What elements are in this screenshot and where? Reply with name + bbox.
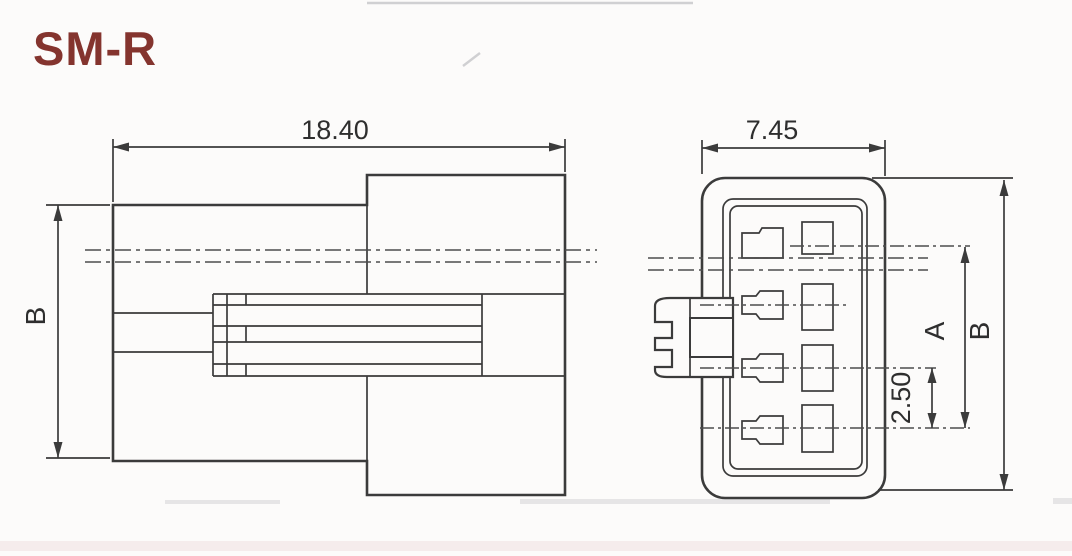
arrowhead-bottom [961,412,970,428]
pin-cavity-keyed-row1 [742,228,783,258]
dimension-value-front-height: B [964,322,995,341]
dimension-value-pin-pitch: 2.50 [886,372,916,425]
page-title: SM-R [33,22,157,75]
arrowhead-top [961,247,970,263]
extension-lines [46,205,110,458]
pin-cavities-rect-column [802,222,833,452]
extension-lines [702,140,885,176]
connector-drawing-svg: SM-R 18.40 [0,0,1072,551]
scan-artifact-smudge [1053,498,1072,504]
dimension-value-side-width: 18.40 [301,115,369,145]
pin-cavity-keyed-row4 [742,416,783,444]
wire-entry-lines [113,313,213,352]
side-latch-bracket [655,298,733,377]
dimension-value-side-height: B [20,307,51,326]
arrowhead-top [928,368,937,383]
rail-inner-lines [213,305,482,364]
arrowhead-left [113,143,129,152]
arrowhead-top [54,205,63,221]
dimension-side-height: B [20,205,110,458]
arrowhead-bottom [54,442,63,458]
arrowhead-right [549,143,565,152]
scan-artifact-smudge [165,500,280,504]
pin-cavity-rect-row1 [802,222,833,254]
dimension-front-width: 7.45 [702,115,885,176]
front-view-inner-wall [723,199,867,476]
scan-artifact-bottom-band [0,541,1072,551]
side-view-housing-outline [113,175,565,495]
pin-cavity-rect-row2 [802,284,833,330]
scan-artifact-smudge [520,499,830,504]
side-view-terminal-rails [113,294,565,376]
dimension-side-width: 18.40 [113,115,565,202]
latch-slot [690,318,733,357]
scan-artifact-stray-mark [463,53,480,66]
extension-lines [113,139,565,202]
drawing-sheet: SM-R 18.40 [0,0,1072,551]
dimension-value-front-width: 7.45 [746,115,799,145]
front-view: 7.45 2.50 A B [648,115,1013,498]
pin-cavities-keyed-column [742,228,783,444]
arrowhead-top [1000,180,1009,196]
arrowhead-bottom [1000,474,1009,490]
arrowhead-right [869,144,885,153]
side-view: 18.40 B [20,115,597,495]
dimension-pin-pitch: 2.50 [886,368,937,428]
arrowhead-left [702,144,718,153]
dimension-value-pin-span: A [919,321,950,340]
arrowhead-bottom [928,413,937,428]
dimension-pin-span: A [919,247,970,428]
